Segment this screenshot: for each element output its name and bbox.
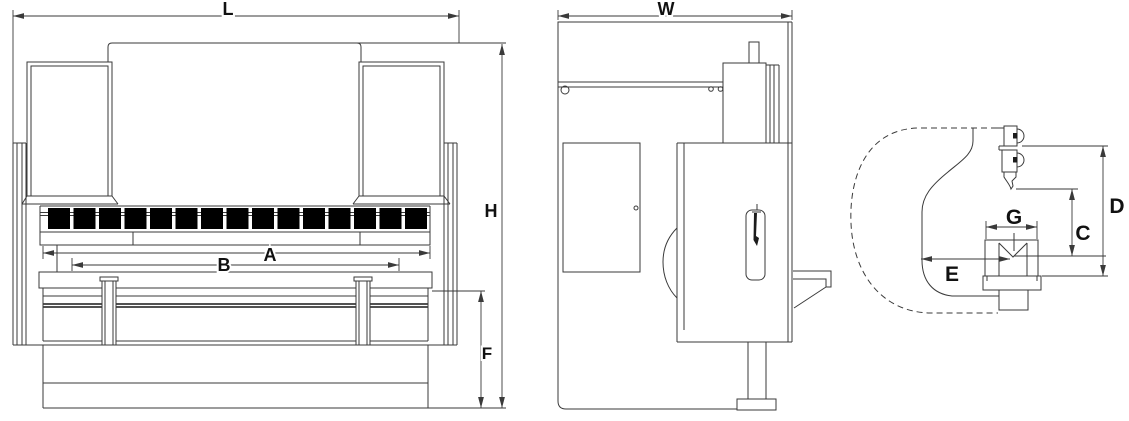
dimension-F-label: F [482,344,492,363]
ram-slot [746,204,765,280]
dimension-G: G [986,206,1037,239]
frame-column-edge [677,143,684,330]
dimension-B-label: B [218,255,231,275]
dimension-L-label: L [223,0,234,19]
dimension-D-label: D [1109,195,1124,218]
dimension-W: W [558,0,792,20]
tool-clamp [380,208,402,229]
tool-clamp [329,208,351,229]
tool-clamp [405,208,427,229]
table-top-plate [39,272,432,288]
safety-bar [558,82,723,94]
tool-clamp [252,208,274,229]
tool-clamp [99,208,121,229]
side-view-machine [558,22,831,410]
right-housing-skirt [353,196,450,204]
die-holder [983,276,1041,290]
dimension-E-label: E [945,263,959,286]
frame-contour-dashed [851,128,998,313]
throat-arc [663,228,677,298]
left-cylinder-housing [27,62,112,196]
right-cylinder-housing [359,62,444,196]
tool-clamp [125,208,147,229]
dimension-A-label: A [264,245,277,265]
dimension-G-label: G [1006,206,1022,229]
punch-tip [1004,172,1016,189]
clamp-row [48,208,427,229]
pedestal-foot [737,399,776,410]
left-housing-skirt [22,196,118,204]
bench-bottom [677,330,792,342]
pedestal-column [748,342,766,399]
tool-clamp [278,208,300,229]
left-support-post [100,277,118,345]
right-support-post [354,277,372,345]
machine-base [13,345,506,408]
dimension-H-label: H [485,201,498,221]
cabinet-door [563,143,640,272]
support-arm [793,271,831,308]
tool-clamp [176,208,198,229]
dimension-C-label: C [1075,222,1090,245]
punch-clamp [999,126,1024,189]
tool-clamp [354,208,376,229]
top-beam-sides [108,43,361,63]
front-view-machine [13,43,506,408]
tool-clamp [150,208,172,229]
dimension-A: A [43,245,430,265]
v-die [985,233,1038,276]
press-brake-dimension-drawing: L H F A B [0,0,1129,421]
left-frame-plate [13,143,26,345]
tool-clamp [201,208,223,229]
hydraulic-cylinder [677,42,792,143]
tool-clamp [74,208,96,229]
clamp-knob [1017,129,1024,143]
drawing-canvas: L H F A B [0,0,1129,421]
dimension-F: F [432,291,492,408]
right-frame-plate [444,143,457,345]
die-pedestal [999,290,1028,310]
ram-bottom-plate [40,232,430,245]
tool-clamp [227,208,249,229]
tool-clamp [303,208,325,229]
tool-clamp [48,208,70,229]
dimension-W-label: W [658,0,675,19]
clamp-knob [1017,153,1024,167]
